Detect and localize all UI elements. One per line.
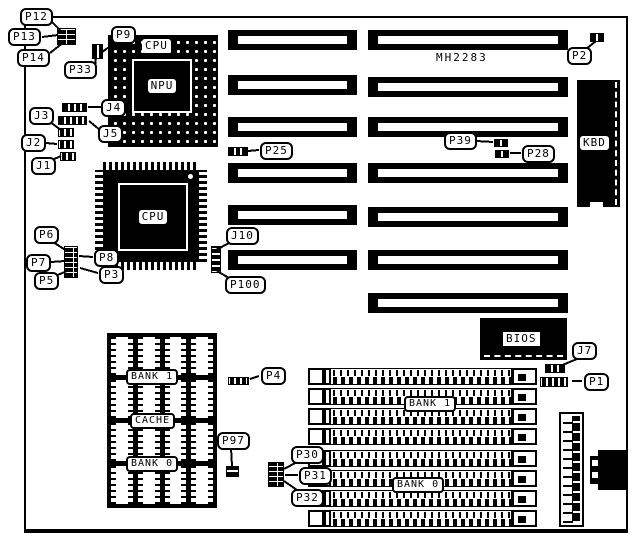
callout-p5: P5 [34, 272, 59, 290]
callout-p31: P31 [299, 467, 332, 485]
callout-j3: J3 [29, 107, 54, 125]
callout-p25: P25 [260, 142, 293, 160]
callout-p7: P7 [26, 254, 51, 272]
callout-j4: J4 [101, 99, 126, 117]
callout-p3: P3 [99, 266, 124, 284]
callout-p9: P9 [111, 26, 136, 44]
callout-p30: P30 [291, 446, 324, 464]
callout-p13: P13 [8, 28, 41, 46]
callout-j2: J2 [21, 134, 46, 152]
callout-p32: P32 [291, 489, 324, 507]
callout-p8: P8 [94, 249, 119, 267]
callout-p4: P4 [261, 367, 286, 385]
callout-p100: P100 [225, 276, 266, 294]
callout-p97: P97 [217, 432, 250, 450]
callout-p28: P28 [522, 145, 555, 163]
callout-p1: P1 [584, 373, 609, 391]
callout-p39: P39 [444, 132, 477, 150]
motherboard-diagram: MH2283 CPU NPU CPU KBD BIOS BANK 1 CACHE… [0, 0, 632, 539]
callout-p12: P12 [20, 8, 53, 26]
callout-p2: P2 [567, 47, 592, 65]
callout-p14: P14 [17, 49, 50, 67]
callout-j7: J7 [572, 342, 597, 360]
callout-j1: J1 [31, 157, 56, 175]
callout-p33: P33 [64, 61, 97, 79]
callout-j10: J10 [226, 227, 259, 245]
callout-p6: P6 [34, 226, 59, 244]
callout-j5: J5 [98, 125, 123, 143]
